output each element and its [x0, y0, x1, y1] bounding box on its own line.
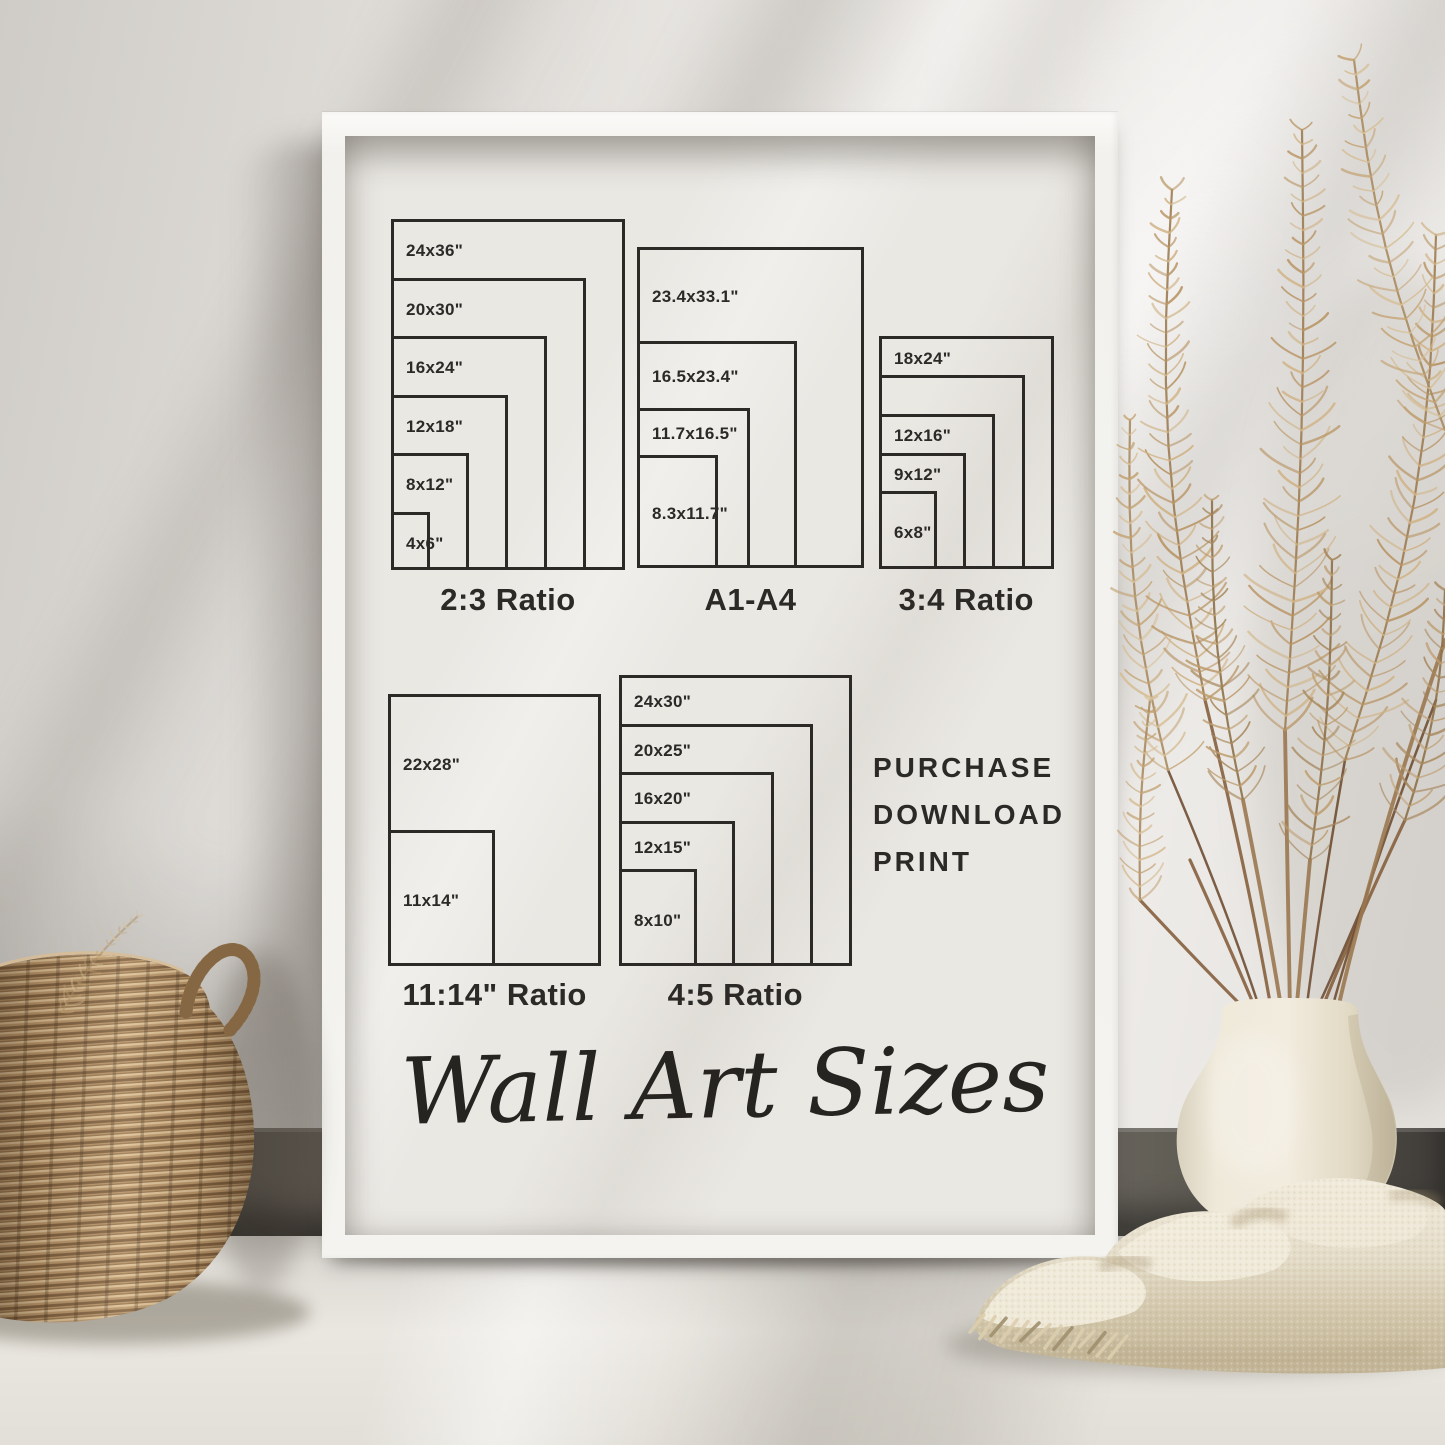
purchase-line: PURCHASE [873, 744, 1065, 791]
size-group-4-5-ratio: 24x30"20x25"16x20"12x15"8x10" [619, 675, 852, 966]
group-caption: 3:4 Ratio [806, 582, 1126, 618]
size-rect: 11x14" [388, 830, 495, 966]
size-label: 9x12" [882, 456, 963, 495]
size-label: 20x30" [394, 281, 583, 340]
size-label: 12x16" [882, 417, 992, 456]
size-label: 6x8" [882, 494, 934, 572]
size-label: 12x15" [622, 824, 732, 873]
size-label: 16x24" [394, 339, 544, 398]
purchase-line: PRINT [873, 838, 1065, 885]
poster-content: PURCHASE DOWNLOAD PRINT Wall Art Sizes 2… [0, 0, 1445, 1445]
size-label: 16.5x23.4" [640, 344, 794, 411]
size-rect: 8x10" [619, 869, 697, 966]
size-label: 11x14" [391, 833, 492, 969]
size-label: 24x36" [394, 222, 622, 281]
size-label: 24x30" [622, 678, 849, 727]
size-rect: 8.3x11.7" [637, 455, 718, 568]
size-label: 11.7x16.5" [640, 411, 747, 458]
size-label: 12x18" [394, 398, 505, 457]
size-group-3-4-ratio: 18x24"12x16"9x12"6x8" [879, 336, 1054, 569]
script-title: Wall Art Sizes [344, 1024, 1106, 1147]
size-label: 18x24" [882, 339, 1051, 378]
size-group-a1-a4: 23.4x33.1"16.5x23.4"11.7x16.5"8.3x11.7" [637, 247, 864, 568]
purchase-line: DOWNLOAD [873, 791, 1065, 838]
size-label: 16x20" [622, 775, 771, 824]
size-label: 4x6" [394, 515, 427, 574]
purchase-text-block: PURCHASE DOWNLOAD PRINT [873, 744, 1065, 885]
size-label: 8.3x11.7" [640, 458, 715, 571]
size-rect: 6x8" [879, 491, 937, 569]
size-label: 22x28" [391, 697, 598, 833]
size-group-11-14-ratio: 22x28"11x14" [388, 694, 601, 966]
size-label: 8x12" [394, 456, 466, 515]
size-label: 8x10" [622, 872, 694, 969]
group-caption: 4:5 Ratio [575, 977, 895, 1013]
mockup-photo: PURCHASE DOWNLOAD PRINT Wall Art Sizes 2… [0, 0, 1445, 1445]
size-rect: 4x6" [391, 512, 430, 571]
size-label: 20x25" [622, 727, 810, 776]
size-label: 23.4x33.1" [640, 250, 861, 344]
size-group-2-3-ratio: 24x36"20x30"16x24"12x18"8x12"4x6" [391, 219, 625, 570]
